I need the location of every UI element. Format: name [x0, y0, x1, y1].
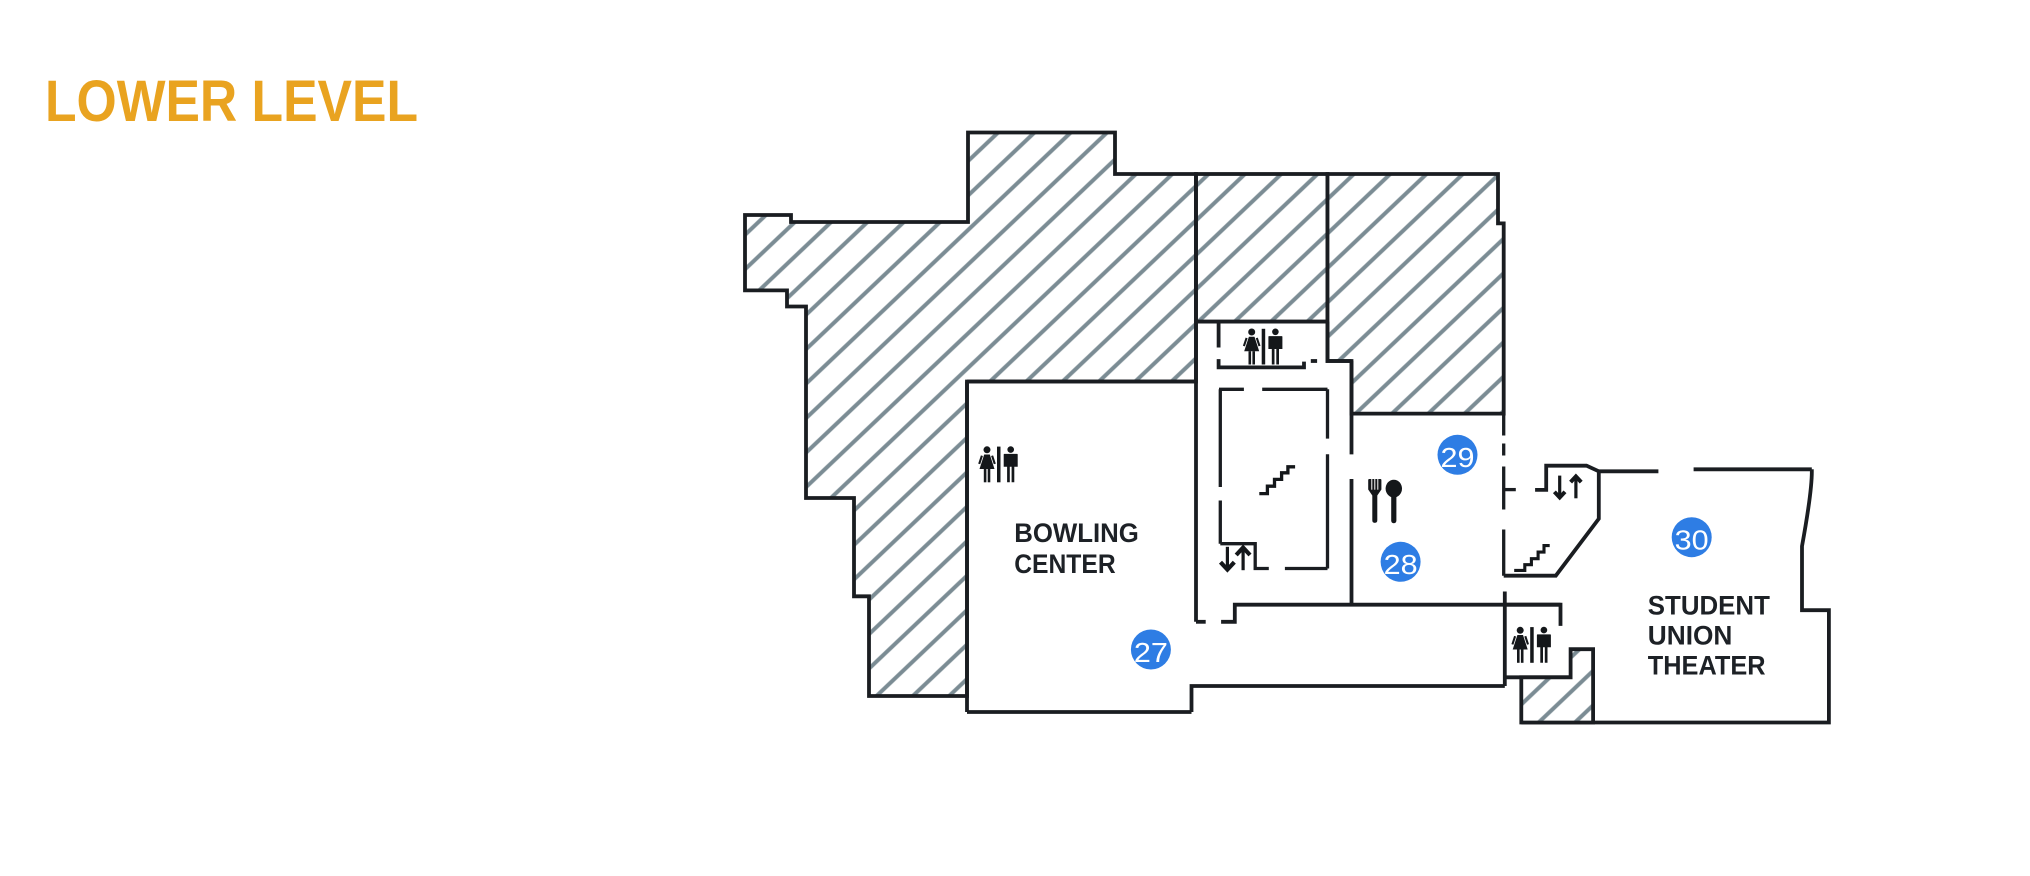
- svg-text:BOWLING: BOWLING: [1014, 518, 1139, 548]
- svg-text:CENTER: CENTER: [1014, 549, 1115, 579]
- svg-text:29: 29: [1441, 442, 1475, 473]
- svg-text:LOWER LEVEL: LOWER LEVEL: [45, 69, 418, 134]
- svg-text:UNION: UNION: [1648, 621, 1733, 651]
- svg-text:28: 28: [1384, 549, 1418, 580]
- svg-text:30: 30: [1675, 525, 1709, 556]
- svg-text:STUDENT: STUDENT: [1648, 590, 1771, 620]
- svg-text:27: 27: [1134, 637, 1168, 668]
- svg-text:THEATER: THEATER: [1648, 651, 1766, 681]
